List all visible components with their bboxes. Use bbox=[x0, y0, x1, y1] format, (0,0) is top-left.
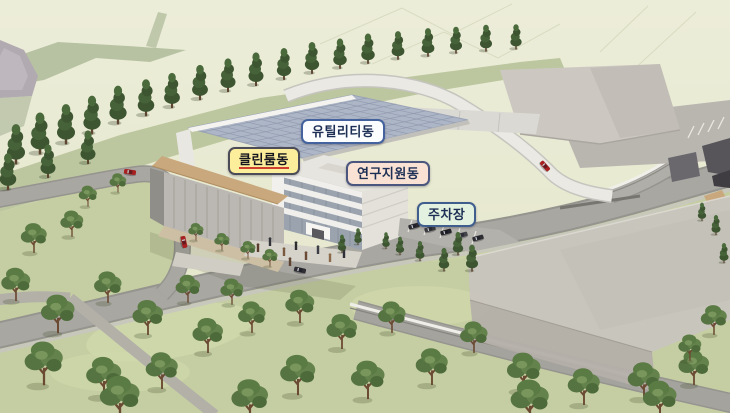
label-parking-lot: 주차장 bbox=[417, 202, 476, 227]
label-research-text: 연구지원동 bbox=[357, 167, 419, 180]
label-utility-building: 유틸리티동 bbox=[301, 119, 385, 144]
label-cleanroom-text: 클린룸동 bbox=[239, 153, 289, 169]
label-utility-text: 유틸리티동 bbox=[312, 125, 374, 138]
label-research-support-building: 연구지원동 bbox=[346, 161, 430, 186]
label-cleanroom-building: 클린룸동 bbox=[228, 147, 300, 175]
rendering-canvas bbox=[0, 0, 730, 413]
site-rendering: 유틸리티동 클린룸동 연구지원동 주차장 bbox=[0, 0, 730, 413]
label-parking-text: 주차장 bbox=[428, 208, 465, 221]
